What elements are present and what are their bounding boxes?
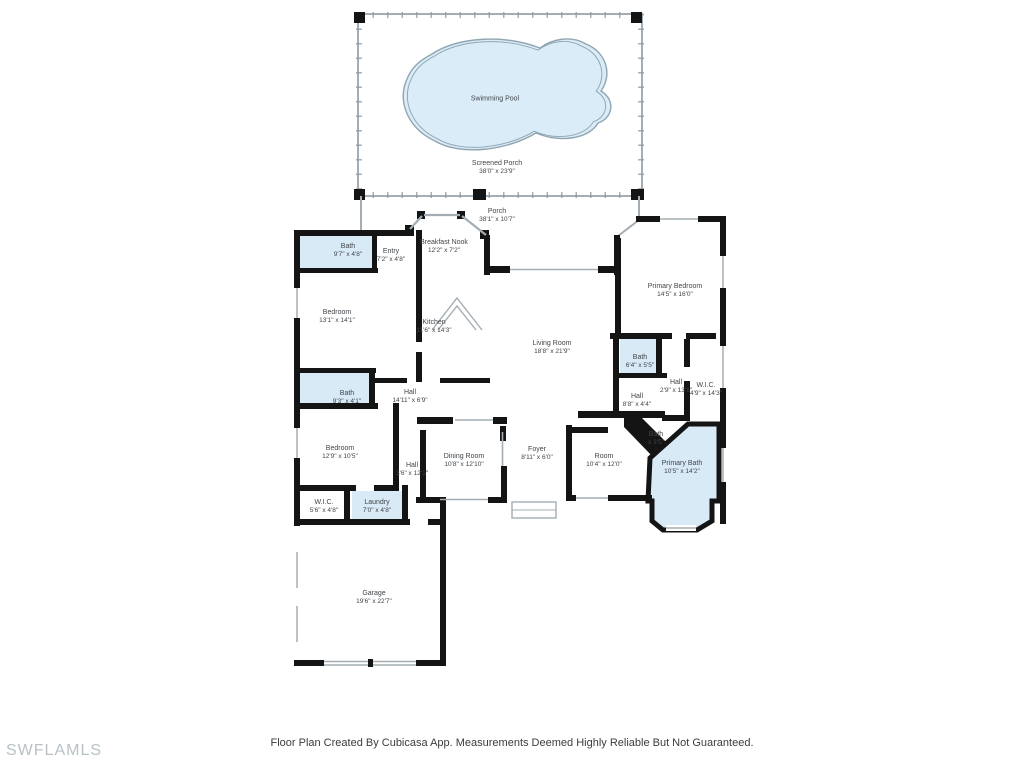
room-label-primary-bath: Primary Bath10'5" x 14'2" [662, 459, 702, 477]
room-label-room: Room10'4" x 12'0" [586, 452, 622, 470]
room-label-bedroom-1: Bedroom13'1" x 14'1" [319, 308, 355, 326]
room-label-swimming-pool: Swimming Pool [471, 94, 519, 103]
room-label-hall-1: Hall2'9" x 13'1" [660, 378, 692, 396]
room-label-wic-2: W.I.C.5'6" x 4'8" [310, 498, 338, 516]
room-label-foyer: Foyer8'11" x 6'0" [521, 445, 553, 463]
room-label-hall-2: Hall8'8" x 4'4" [623, 392, 651, 410]
room-label-hall-4: Hall3'6" x 12'1" [396, 461, 428, 479]
mls-watermark: SWFLAMLS [6, 742, 102, 760]
room-label-bath-4: Bathx 3'5" [648, 430, 664, 448]
footer-disclaimer: Floor Plan Created By Cubicasa App. Meas… [270, 737, 753, 749]
room-label-primary-bedroom: Primary Bedroom14'5" x 16'0" [648, 282, 702, 300]
room-label-bath-1: Bath9'7" x 4'8" [334, 242, 362, 260]
floor-plan-page: Swimming Pool Screened Porch38'0" x 23'9… [0, 0, 1024, 768]
room-label-garage: Garage19'6" x 22'7" [356, 589, 392, 607]
room-label-wic-1: W.I.C.4'9" x 14'3" [690, 381, 722, 399]
room-label-screened-porch: Screened Porch38'0" x 23'9" [472, 159, 522, 177]
room-label-living-room: Living Room18'8" x 21'9" [533, 339, 572, 357]
room-label-bath-3: Bath9'3" x 4'1" [333, 389, 361, 407]
room-label-bath-2: Bath6'4" x 5'5" [626, 353, 654, 371]
room-label-porch: Porch38'1" x 10'7" [479, 207, 515, 225]
room-label-bedroom-2: Bedroom12'9" x 10'5" [322, 444, 358, 462]
room-label-entry: Entry7'2" x 4'8" [377, 247, 405, 265]
room-label-laundry: Laundry7'0" x 4'8" [363, 498, 391, 516]
room-label-dining-room: Dining Room10'8" x 12'10" [444, 452, 484, 470]
room-label-breakfast-nook: Breakfast Nook12'2" x 7'2" [420, 238, 468, 256]
room-label-hall-3: Hall14'11" x 6'9" [392, 388, 427, 406]
floor-plan-drawing [0, 0, 1024, 768]
room-label-kitchen: Kitchen11'6" x 14'3" [416, 318, 451, 336]
wet-room-fills [300, 236, 719, 530]
